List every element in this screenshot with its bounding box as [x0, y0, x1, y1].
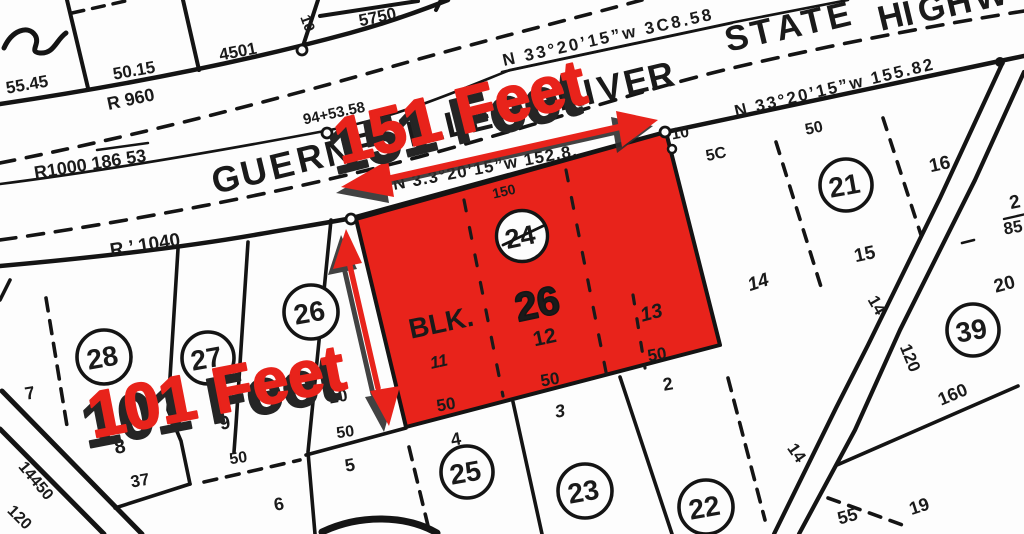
- svg-text:50: 50: [335, 423, 355, 442]
- svg-text:21: 21: [826, 168, 862, 204]
- svg-text:50: 50: [435, 394, 457, 416]
- svg-text:50: 50: [804, 118, 825, 138]
- svg-text:39: 39: [953, 313, 989, 349]
- svg-text:22: 22: [686, 490, 722, 526]
- svg-text:37: 37: [129, 470, 151, 492]
- svg-text:28: 28: [84, 340, 120, 376]
- svg-text:50: 50: [228, 449, 248, 468]
- svg-text:26: 26: [291, 295, 327, 331]
- svg-text:25: 25: [447, 455, 483, 491]
- svg-text:50: 50: [539, 369, 561, 391]
- svg-text:50: 50: [646, 344, 668, 366]
- svg-text:10: 10: [670, 124, 691, 144]
- svg-text:23: 23: [565, 474, 601, 510]
- svg-text:12: 12: [531, 324, 559, 351]
- svg-text:16: 16: [927, 152, 952, 177]
- svg-text:26: 26: [511, 278, 564, 330]
